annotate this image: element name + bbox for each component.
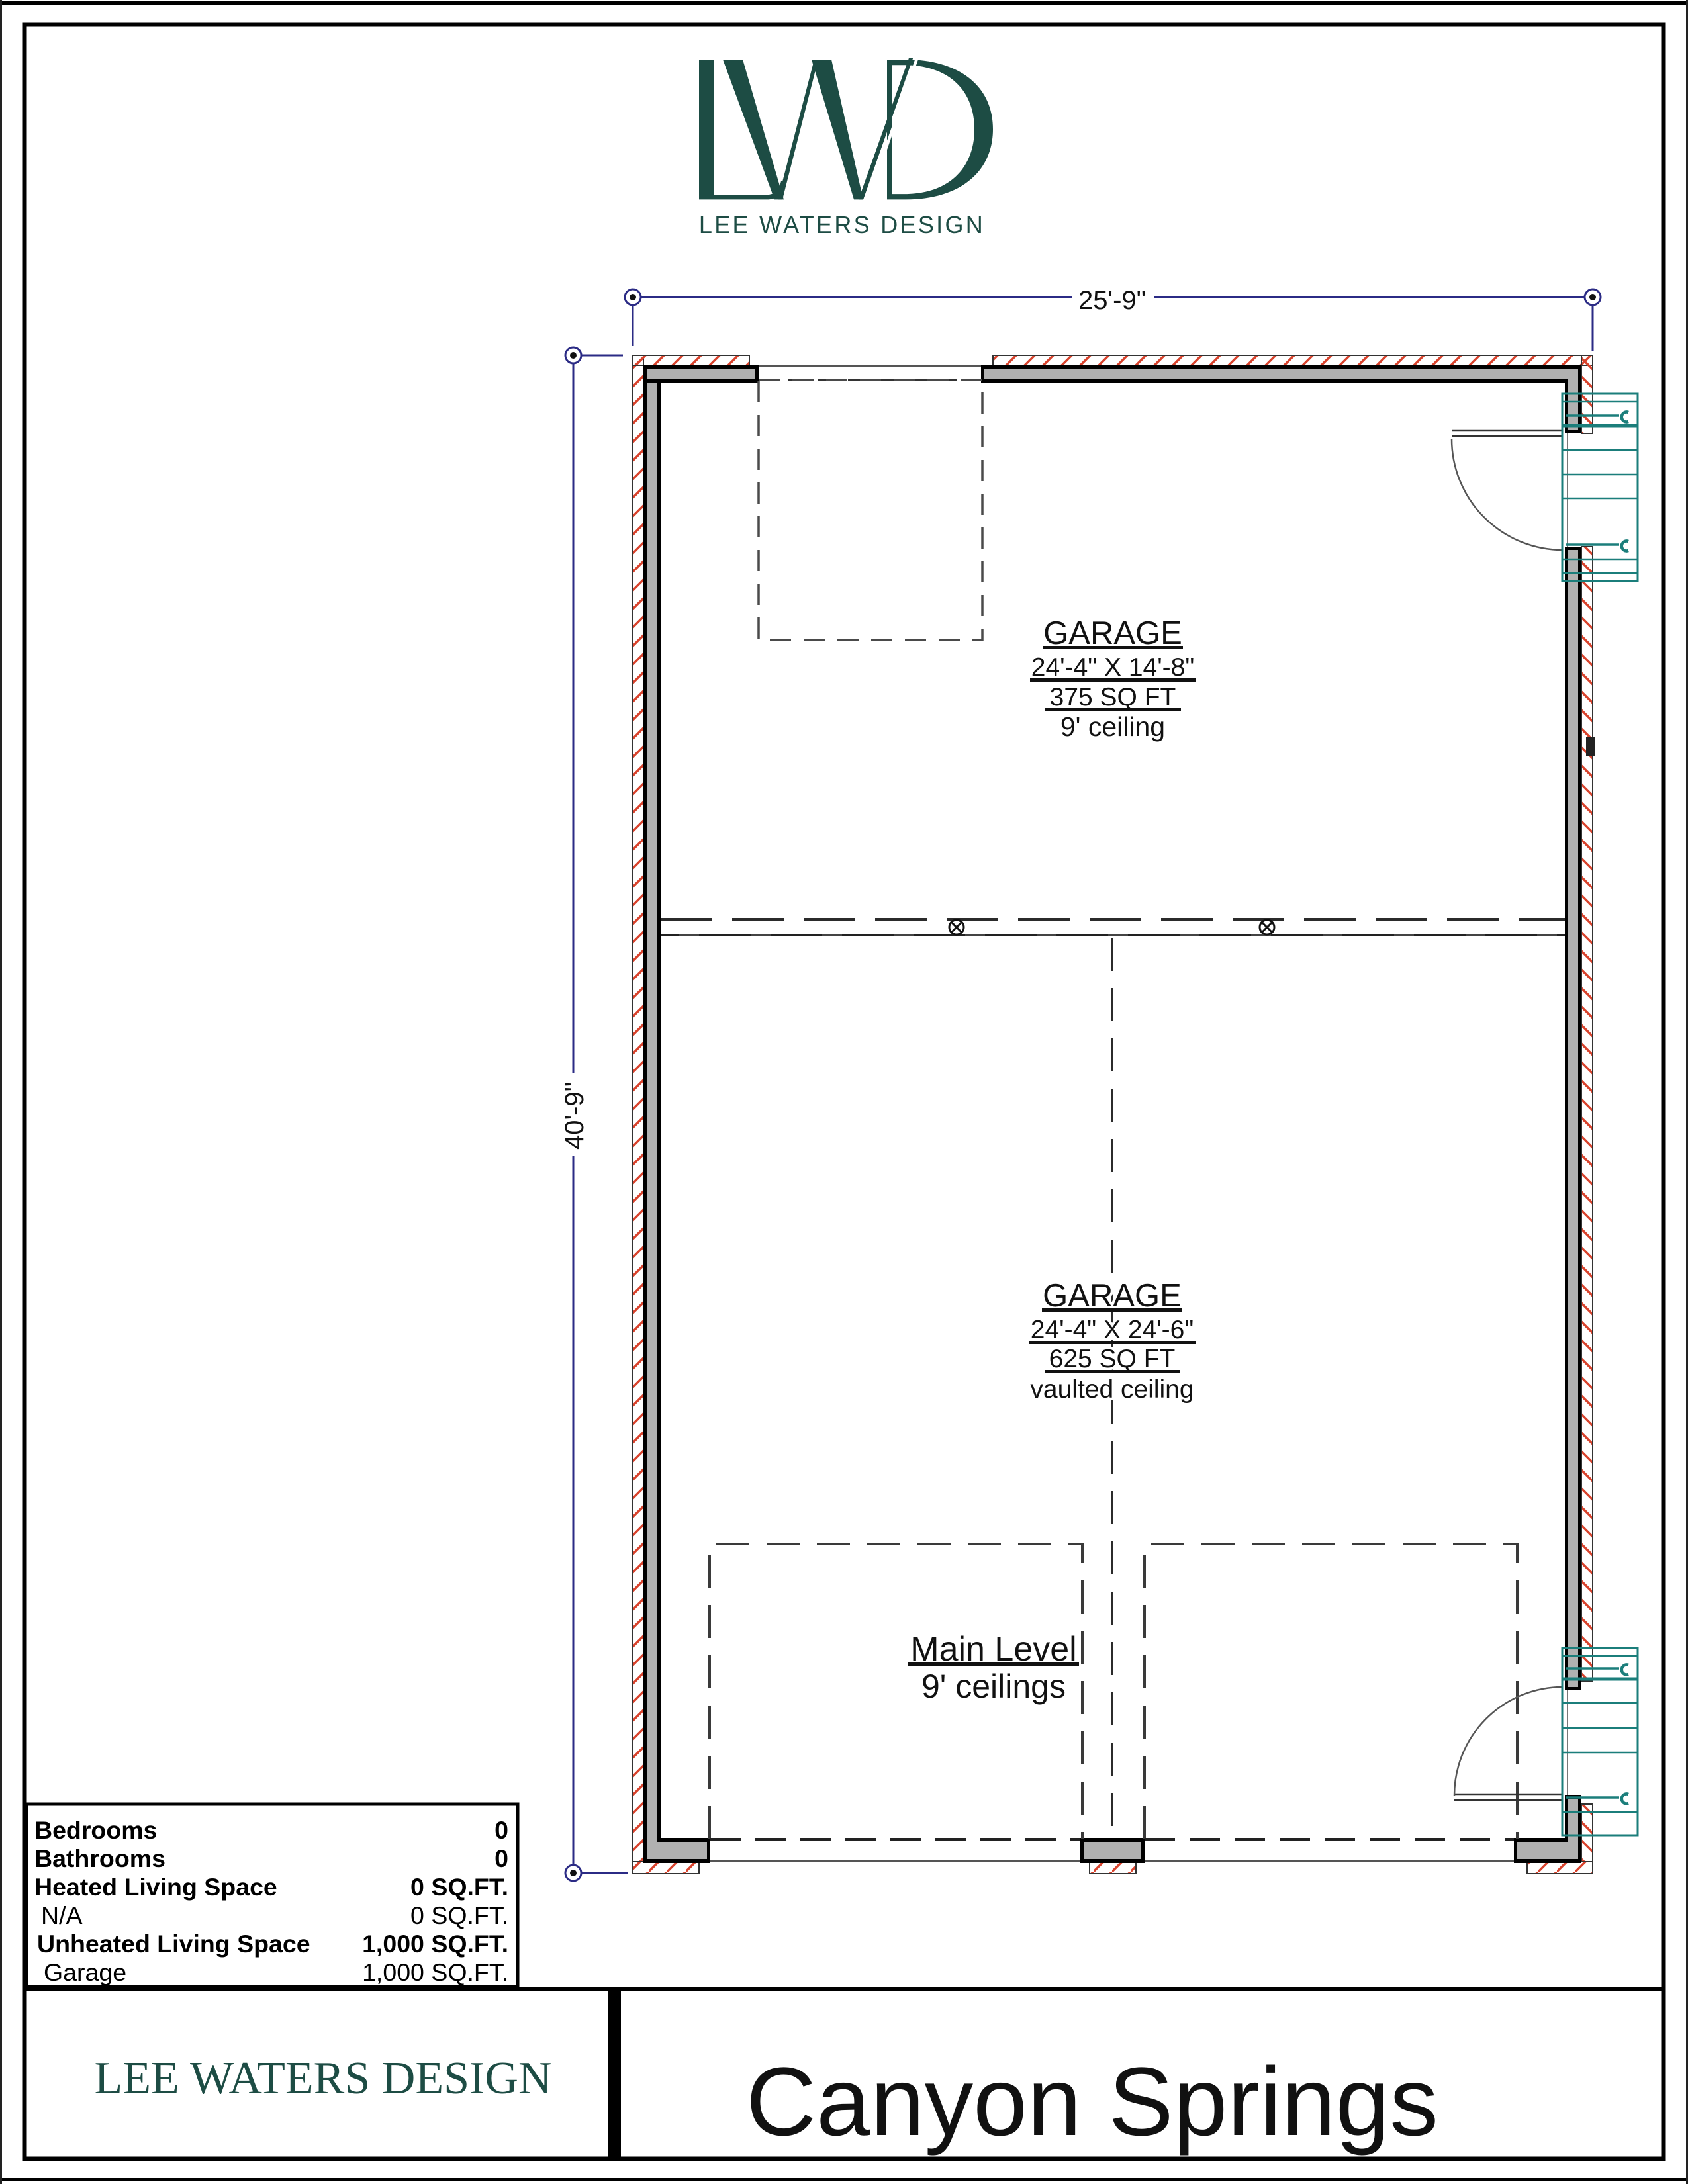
svg-text:Canyon Springs: Canyon Springs <box>746 2048 1438 2156</box>
svg-text:24'-4" X 14'-8": 24'-4" X 14'-8" <box>1031 653 1194 682</box>
svg-text:GARAGE: GARAGE <box>1043 1278 1182 1314</box>
svg-text:9' ceilings: 9' ceilings <box>921 1668 1066 1705</box>
svg-text:0 SQ.FT.: 0 SQ.FT. <box>410 1873 508 1901</box>
svg-text:24'-4" X 24'-6": 24'-4" X 24'-6" <box>1031 1316 1194 1344</box>
svg-text:Bedrooms: Bedrooms <box>34 1816 157 1844</box>
svg-text:LEE WATERS DESIGN: LEE WATERS DESIGN <box>95 2053 552 2104</box>
svg-text:vaulted ceiling: vaulted ceiling <box>1030 1375 1194 1404</box>
svg-text:25'-9": 25'-9" <box>1078 286 1146 315</box>
svg-text:Unheated Living Space: Unheated Living Space <box>37 1930 310 1958</box>
svg-text:N/A: N/A <box>41 1901 83 1929</box>
svg-text:Bathrooms: Bathrooms <box>34 1844 165 1872</box>
svg-text:0: 0 <box>494 1844 508 1872</box>
svg-text:Garage: Garage <box>44 1958 126 1986</box>
svg-text:GARAGE: GARAGE <box>1043 615 1182 651</box>
svg-text:0: 0 <box>494 1816 508 1844</box>
svg-text:1,000 SQ.FT.: 1,000 SQ.FT. <box>362 1930 508 1958</box>
svg-text:9' ceiling: 9' ceiling <box>1060 711 1165 742</box>
svg-text:375 SQ FT: 375 SQ FT <box>1050 683 1176 711</box>
svg-text:625 SQ FT: 625 SQ FT <box>1049 1345 1176 1373</box>
svg-text:Heated Living Space: Heated Living Space <box>34 1873 277 1901</box>
svg-text:40'-9": 40'-9" <box>560 1082 589 1150</box>
svg-text:0 SQ.FT.: 0 SQ.FT. <box>410 1901 508 1929</box>
svg-text:LEE WATERS DESIGN: LEE WATERS DESIGN <box>699 211 985 238</box>
svg-text:1,000 SQ.FT.: 1,000 SQ.FT. <box>362 1958 508 1986</box>
